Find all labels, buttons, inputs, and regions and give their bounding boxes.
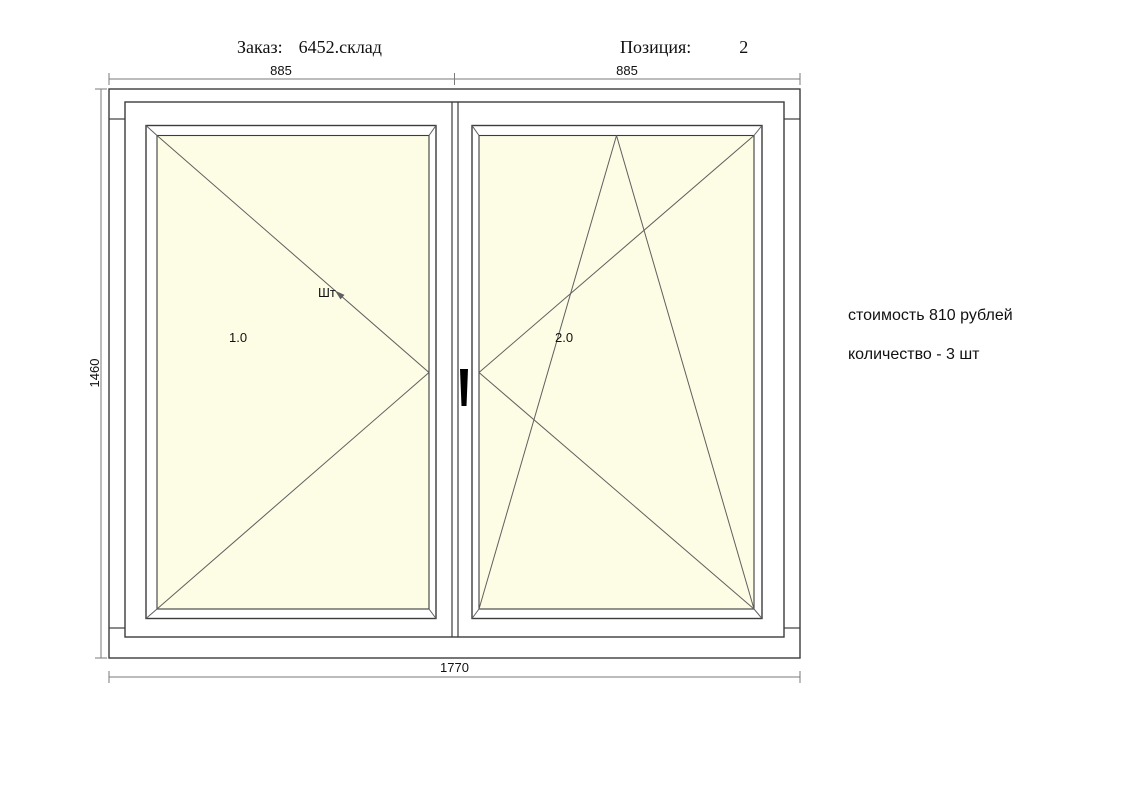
left-sash-glass bbox=[157, 136, 429, 610]
left-sash-tag: Шт bbox=[318, 285, 336, 300]
left-sash-number: 1.0 bbox=[229, 330, 247, 345]
dim-label-width-left: 885 bbox=[270, 63, 292, 78]
info-block: стоимость 810 рублей количество - 3 шт bbox=[848, 307, 1013, 364]
window-drawing: 885 885 1460 1770 1.0 Шт 2.0 bbox=[0, 0, 1132, 800]
right-sash-number: 2.0 bbox=[555, 330, 573, 345]
report-page: Заказ: 6452.склад Позиция: 2 bbox=[0, 0, 1132, 800]
dim-label-total-width: 1770 bbox=[440, 660, 469, 675]
dim-label-height: 1460 bbox=[87, 359, 102, 388]
right-sash-glass bbox=[479, 136, 754, 610]
quantity-text: количество - 3 шт bbox=[848, 346, 1013, 364]
dim-label-width-right: 885 bbox=[616, 63, 638, 78]
cost-text: стоимость 810 рублей bbox=[848, 307, 1013, 325]
